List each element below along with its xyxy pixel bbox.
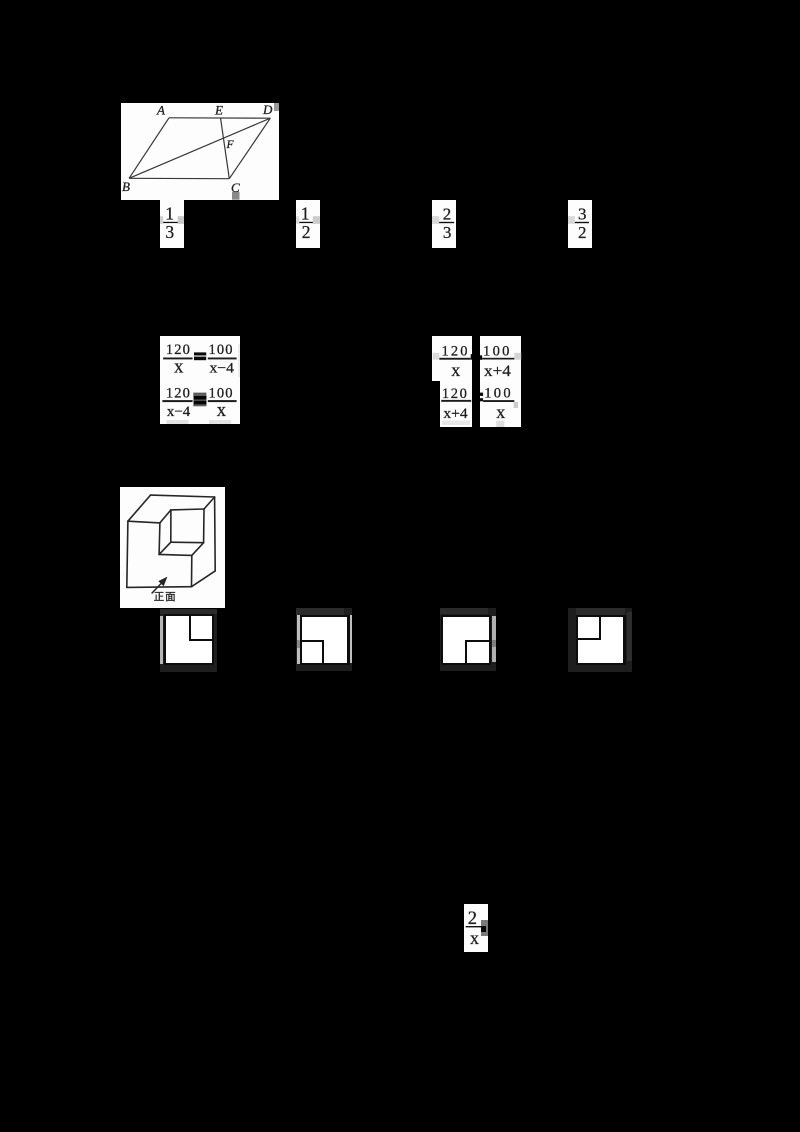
svg-text:x: x — [496, 402, 505, 422]
svg-text:A: A — [156, 103, 165, 118]
svg-text:2: 2 — [302, 222, 311, 242]
svg-text:x: x — [451, 360, 460, 380]
svg-text:100: 100 — [483, 343, 509, 359]
svg-text:3: 3 — [443, 223, 452, 242]
svg-text:x+4: x+4 — [484, 363, 511, 380]
svg-text:120: 120 — [442, 386, 467, 402]
svg-text:120: 120 — [166, 385, 190, 401]
svg-text:x+4: x+4 — [443, 406, 468, 422]
svg-text:E: E — [214, 103, 223, 118]
svg-text:100: 100 — [484, 385, 510, 401]
svg-text:2: 2 — [443, 204, 452, 223]
svg-text:2: 2 — [578, 223, 587, 242]
svg-text:C: C — [231, 180, 240, 195]
svg-text:x: x — [470, 928, 479, 948]
svg-text:正面: 正面 — [153, 592, 176, 603]
svg-text:x: x — [217, 401, 227, 421]
svg-text:x−4: x−4 — [167, 404, 191, 420]
svg-text:3: 3 — [165, 222, 174, 242]
svg-text:100: 100 — [209, 342, 233, 358]
svg-text:120: 120 — [441, 343, 467, 359]
svg-text:3: 3 — [578, 204, 587, 223]
svg-text:x−4: x−4 — [210, 361, 235, 377]
svg-text:1: 1 — [301, 203, 310, 223]
svg-text:1: 1 — [165, 203, 174, 223]
svg-text:x: x — [174, 358, 184, 378]
svg-text:2: 2 — [468, 909, 477, 929]
svg-text:120: 120 — [166, 342, 190, 358]
svg-text:B: B — [122, 179, 130, 194]
svg-text:D: D — [262, 102, 273, 117]
svg-text:F: F — [226, 139, 235, 151]
svg-text:100: 100 — [209, 385, 233, 401]
